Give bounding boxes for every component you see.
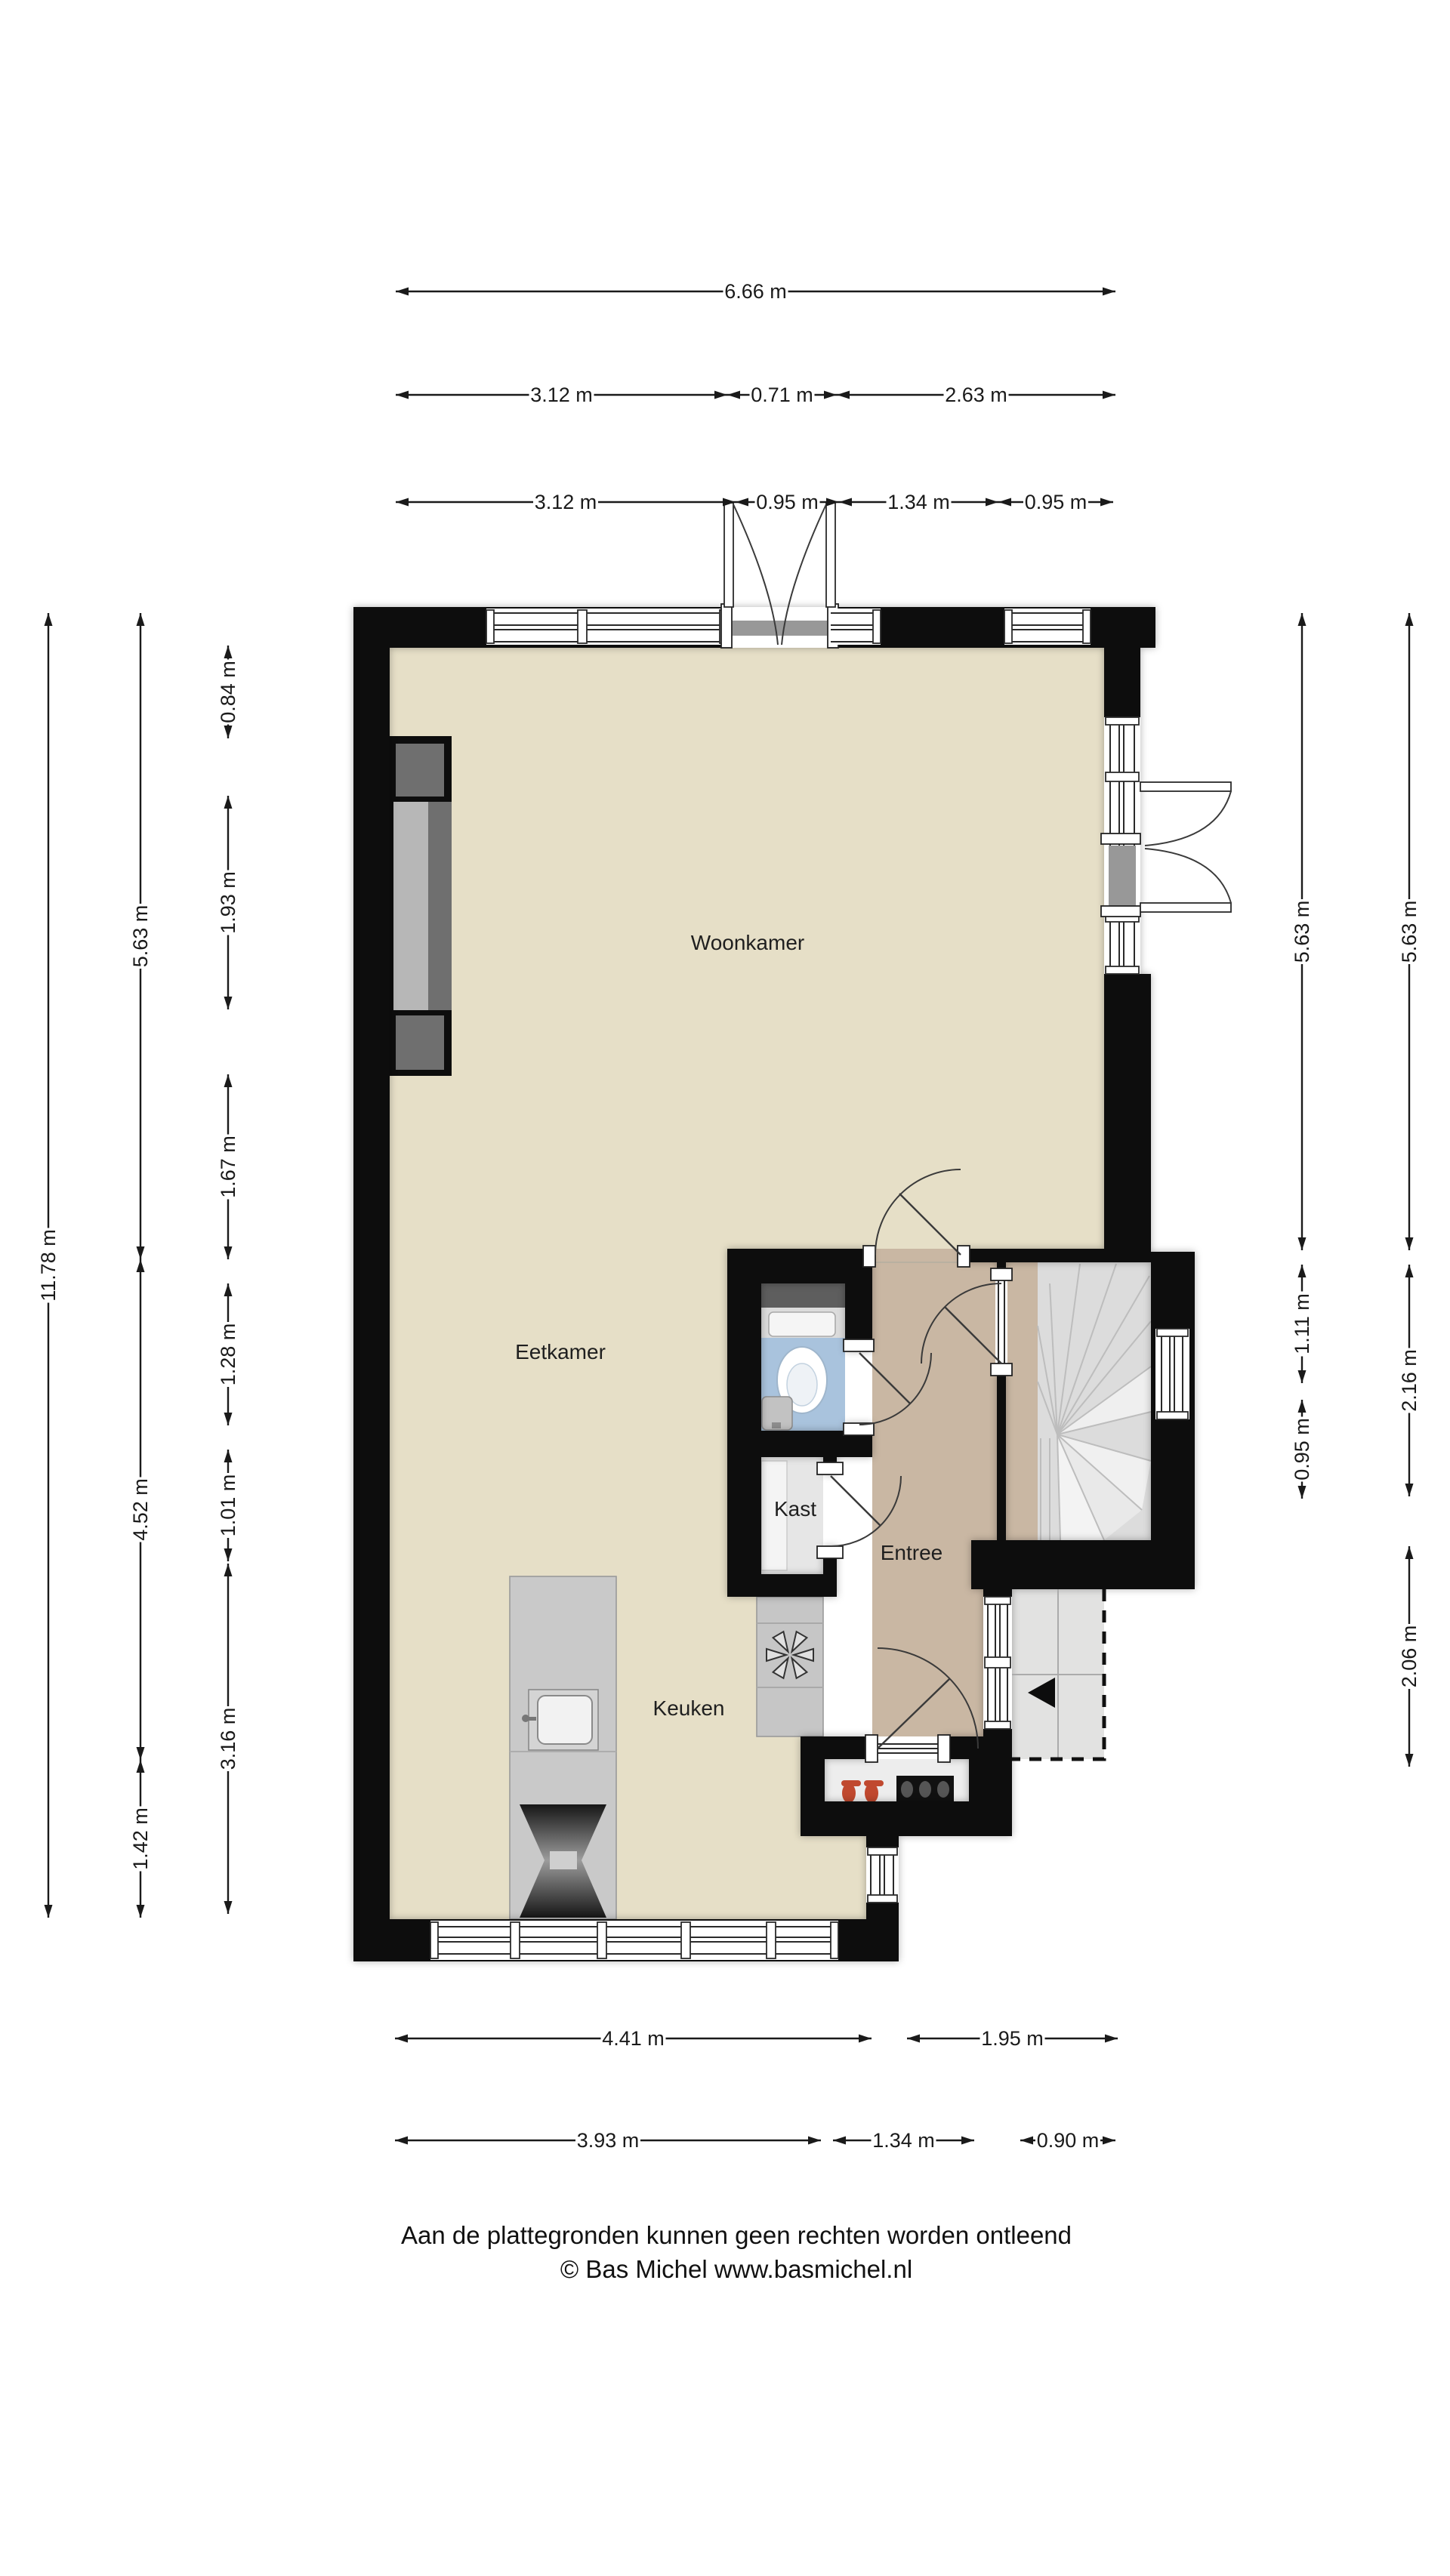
dimension: 2.06 m bbox=[1397, 1546, 1421, 1767]
floor-stair-landing bbox=[1006, 1262, 1038, 1540]
dimension: 0.95 m bbox=[998, 490, 1113, 514]
svg-text:4.52 m: 4.52 m bbox=[129, 1478, 152, 1541]
svg-text:0.71 m: 0.71 m bbox=[751, 384, 813, 406]
dimension: 0.90 m bbox=[1020, 2128, 1115, 2152]
svg-text:2.16 m: 2.16 m bbox=[1398, 1349, 1421, 1412]
svg-text:0.95 m: 0.95 m bbox=[756, 491, 819, 513]
dimension: 1.42 m bbox=[128, 1760, 153, 1918]
svg-text:4.41 m: 4.41 m bbox=[602, 2027, 665, 2050]
svg-text:5.63 m: 5.63 m bbox=[129, 905, 152, 968]
svg-text:3.16 m: 3.16 m bbox=[217, 1708, 239, 1770]
french-door-right bbox=[1140, 782, 1231, 912]
window bbox=[831, 609, 881, 645]
window bbox=[983, 1597, 1012, 1729]
dimension: 0.84 m bbox=[216, 646, 240, 738]
svg-text:0.95 m: 0.95 m bbox=[1025, 491, 1087, 513]
disclaimer-text: Aan de plattegronden kunnen geen rechten… bbox=[11, 2218, 1450, 2252]
dimension: 2.63 m bbox=[837, 383, 1115, 407]
dimension: 4.52 m bbox=[128, 1259, 153, 1760]
dimension: 1.34 m bbox=[833, 2128, 974, 2152]
dimension: 5.63 m bbox=[1290, 613, 1314, 1250]
svg-text:5.63 m: 5.63 m bbox=[1398, 901, 1421, 963]
dimension: 6.66 m bbox=[396, 279, 1115, 304]
svg-text:3.93 m: 3.93 m bbox=[577, 2129, 640, 2152]
dimension: 1.34 m bbox=[839, 490, 998, 514]
dimension: 1.01 m bbox=[216, 1450, 240, 1561]
toilet-room bbox=[761, 1283, 845, 1431]
dimension: 3.12 m bbox=[396, 383, 727, 407]
svg-text:0.84 m: 0.84 m bbox=[217, 661, 239, 723]
svg-text:2.06 m: 2.06 m bbox=[1398, 1625, 1421, 1688]
svg-text:0.90 m: 0.90 m bbox=[1037, 2129, 1100, 2152]
window bbox=[486, 609, 729, 645]
dimension: 11.78 m bbox=[36, 613, 60, 1918]
island-sink bbox=[538, 1696, 592, 1744]
svg-text:1.95 m: 1.95 m bbox=[981, 2027, 1044, 2050]
floor-plan-drawing: Woonkamer Eetkamer Kast Entree Keuken 6.… bbox=[0, 0, 1450, 2576]
svg-text:3.12 m: 3.12 m bbox=[535, 491, 597, 513]
svg-text:1.34 m: 1.34 m bbox=[887, 491, 950, 513]
label-closet: Kast bbox=[774, 1497, 816, 1521]
label-dining: Eetkamer bbox=[515, 1340, 606, 1363]
svg-text:0.95 m: 0.95 m bbox=[1291, 1418, 1313, 1481]
dimension: 5.63 m bbox=[128, 613, 153, 1259]
toilet-shelf bbox=[761, 1283, 845, 1308]
svg-text:11.78 m: 11.78 m bbox=[37, 1229, 60, 1302]
dimension: 1.93 m bbox=[216, 796, 240, 1009]
label-entry: Entree bbox=[881, 1541, 943, 1564]
floor-kitchen-se bbox=[757, 1836, 866, 1919]
floor-kitchen-south bbox=[757, 1736, 801, 1836]
window bbox=[1155, 1329, 1189, 1419]
svg-text:3.12 m: 3.12 m bbox=[530, 384, 593, 406]
svg-text:1.67 m: 1.67 m bbox=[217, 1135, 239, 1198]
dimension: 1.28 m bbox=[216, 1283, 240, 1425]
kitchen-counter bbox=[757, 1597, 823, 1736]
toilet-cistern bbox=[769, 1312, 835, 1336]
window bbox=[1004, 609, 1091, 645]
floor-plan-page: Woonkamer Eetkamer Kast Entree Keuken 6.… bbox=[0, 0, 1450, 2576]
dimension: 1.11 m bbox=[1290, 1265, 1314, 1383]
dimension: 3.16 m bbox=[216, 1564, 240, 1914]
svg-text:1.01 m: 1.01 m bbox=[217, 1474, 239, 1537]
dimension: 5.63 m bbox=[1397, 613, 1421, 1250]
copyright-text: © Bas Michel www.basmichel.nl bbox=[11, 2252, 1450, 2286]
svg-text:1.28 m: 1.28 m bbox=[217, 1323, 239, 1386]
dimension: 1.67 m bbox=[216, 1074, 240, 1259]
svg-text:1.42 m: 1.42 m bbox=[129, 1807, 152, 1870]
dimension: 2.16 m bbox=[1397, 1265, 1421, 1496]
footer: Aan de plattegronden kunnen geen rechten… bbox=[11, 2218, 1450, 2286]
svg-text:1.93 m: 1.93 m bbox=[217, 871, 239, 934]
doormat-grill bbox=[896, 1776, 954, 1803]
label-kitchen: Keuken bbox=[653, 1696, 725, 1720]
dimension: 1.95 m bbox=[907, 2026, 1118, 2051]
window-right bbox=[1101, 717, 1140, 974]
dimension: 0.95 m bbox=[1290, 1400, 1314, 1499]
dimension: 0.71 m bbox=[727, 383, 837, 407]
svg-text:6.66 m: 6.66 m bbox=[724, 280, 787, 303]
kitchen-island bbox=[510, 1576, 616, 1919]
label-living: Woonkamer bbox=[691, 931, 804, 954]
floor-kitchen-west bbox=[727, 1597, 757, 1919]
chimney bbox=[390, 736, 452, 1076]
dimension: 3.93 m bbox=[395, 2128, 821, 2152]
svg-text:2.63 m: 2.63 m bbox=[945, 384, 1007, 406]
window bbox=[430, 1921, 838, 1960]
svg-text:1.11 m: 1.11 m bbox=[1291, 1293, 1313, 1354]
svg-text:5.63 m: 5.63 m bbox=[1291, 901, 1313, 963]
svg-text:1.34 m: 1.34 m bbox=[872, 2129, 935, 2152]
window bbox=[866, 1847, 899, 1903]
french-door-top bbox=[721, 503, 838, 648]
floor-mid-strip bbox=[727, 1193, 1004, 1252]
dimension: 3.12 m bbox=[396, 490, 736, 514]
dimension: 4.41 m bbox=[395, 2026, 872, 2051]
